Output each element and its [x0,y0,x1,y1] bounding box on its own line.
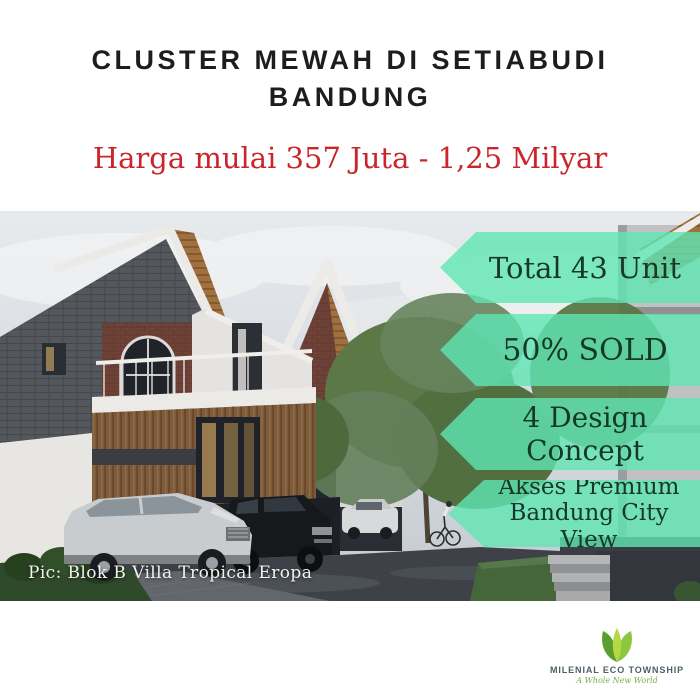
ribbon-premium-access: Akses Premium Bandung City View [448,480,700,547]
price-line: Harga mulai 357 Juta - 1,25 Milyar [0,141,700,175]
title-line-2: BANDUNG [0,79,700,116]
brand-tagline: A Whole New World [549,676,685,685]
ribbon-design-concept: 4 Design Concept [440,398,700,470]
ribbon-sold-label: 50% SOLD [502,333,667,368]
ribbon-total-units-label: Total 43 Unit [489,251,681,285]
ribbon-total-units: Total 43 Unit [440,232,700,303]
ribbon-design-concept-label: 4 Design Concept [470,401,700,467]
photo-caption: Pic: Blok B Villa Tropical Eropa [28,563,312,583]
page-title: CLUSTER MEWAH DI SETIABUDI BANDUNG [0,42,700,116]
brand-name: MILENIAL ECO TOWNSHIP [549,665,685,675]
ribbon-sold: 50% SOLD [440,314,700,386]
leaf-logo-icon [596,627,638,663]
ribbon-premium-access-line2: Bandung City View [478,500,700,552]
flyer-poster: CLUSTER MEWAH DI SETIABUDI BANDUNG Harga… [0,0,700,700]
brand-logo: MILENIAL ECO TOWNSHIP A Whole New World [549,627,685,685]
title-line-1: CLUSTER MEWAH DI SETIABUDI [0,42,700,79]
